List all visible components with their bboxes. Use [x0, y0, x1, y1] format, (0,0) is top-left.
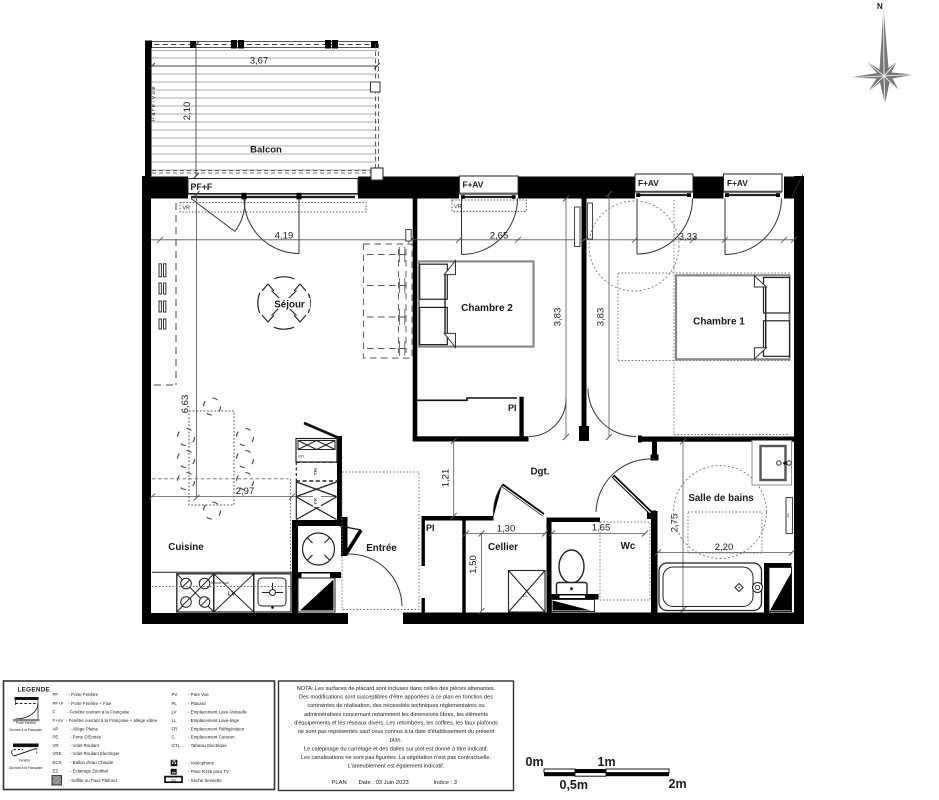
- svg-text:PI: PI: [426, 523, 435, 533]
- svg-text:PV: PV: [172, 692, 178, 697]
- svg-text:- Emplacement Lave-Vaisselle: - Emplacement Lave-Vaisselle: [188, 710, 248, 715]
- svg-text:contraintes de réalisation, de: contraintes de réalisation, des nécessit…: [307, 703, 484, 709]
- svg-text:1,50: 1,50: [468, 555, 479, 574]
- svg-text:1,30: 1,30: [497, 523, 516, 534]
- svg-text:AP: AP: [53, 726, 59, 731]
- svg-text:1,65: 1,65: [592, 523, 611, 534]
- svg-text:F+AV: F+AV: [53, 718, 64, 723]
- svg-text:2,20: 2,20: [715, 542, 734, 553]
- svg-text:- Emplacement Lave-linge: - Emplacement Lave-linge: [188, 718, 240, 723]
- svg-text:LEGENDE: LEGENDE: [18, 687, 51, 694]
- svg-text:- Placard: - Placard: [188, 701, 206, 706]
- svg-text:Meuble haut: Meuble haut: [211, 581, 229, 585]
- svg-text:LL: LL: [523, 593, 528, 598]
- svg-text:FR: FR: [172, 726, 178, 731]
- svg-text:N: N: [877, 2, 883, 11]
- svg-text:Chambre 1: Chambre 1: [693, 317, 745, 328]
- svg-text:Salle de bains: Salle de bains: [688, 493, 754, 504]
- svg-text:- Volet Roulant Electrique: - Volet Roulant Electrique: [70, 751, 120, 756]
- svg-text:- Fenêtre ouvrant à la França: - Fenêtre ouvrant à la Française + allèg…: [66, 718, 158, 723]
- svg-text:1,21: 1,21: [440, 469, 451, 488]
- svg-text:0m: 0m: [526, 755, 544, 769]
- svg-text:Chambre 2: Chambre 2: [461, 303, 513, 314]
- svg-text:TRI: TRI: [313, 468, 318, 475]
- svg-text:Ouvrant à la Française: Ouvrant à la Française: [9, 728, 43, 732]
- svg-text:- Fenêtre ouvrant à la França: - Fenêtre ouvrant à la Française: [67, 710, 130, 715]
- svg-text:- Emplacement Cuisson: - Emplacement Cuisson: [188, 734, 235, 739]
- svg-text:3,83: 3,83: [553, 308, 564, 327]
- svg-text:- Allège Pleine: - Allège Pleine: [70, 726, 99, 731]
- svg-text:F: F: [53, 710, 56, 715]
- svg-text:2,10: 2,10: [182, 102, 193, 121]
- svg-text:Wc: Wc: [621, 541, 636, 552]
- svg-text:1m: 1m: [598, 755, 616, 769]
- svg-text:Balcon: Balcon: [250, 145, 282, 156]
- svg-text:- Porte Fenêtre: - Porte Fenêtre: [69, 692, 99, 697]
- svg-text:F+AV: F+AV: [638, 178, 659, 188]
- svg-text:FR: FR: [313, 497, 318, 504]
- svg-text:SS: SS: [786, 513, 790, 517]
- svg-text:2,97: 2,97: [236, 486, 255, 497]
- svg-text:ne sont pas représentés sauf c: ne sont pas représentés sauf ceux connus…: [298, 729, 495, 735]
- svg-text:0,5m: 0,5m: [560, 778, 589, 792]
- svg-text:LV: LV: [228, 591, 236, 598]
- svg-text:PF: PF: [53, 692, 59, 697]
- svg-text:PI: PI: [508, 403, 517, 413]
- svg-text:PF+F: PF+F: [53, 701, 64, 706]
- svg-text:Fenêtre: Fenêtre: [19, 759, 31, 763]
- svg-text:VR: VR: [53, 743, 59, 748]
- svg-text:Des modifications sont suscept: Des modifications sont susceptibles d'êt…: [299, 695, 493, 701]
- svg-text:administratives concernant not: administratives concernant notamment les…: [304, 712, 488, 718]
- svg-text:- Porte D'Entrée: - Porte D'Entrée: [70, 734, 102, 739]
- svg-text:2,65: 2,65: [490, 230, 509, 241]
- svg-text:PLAN: PLAN: [332, 780, 347, 786]
- svg-text:- Soffite ou Faux Plafond: - Soffite ou Faux Plafond: [69, 778, 118, 783]
- svg-text:- Porte Fenêtre + Fixe: - Porte Fenêtre + Fixe: [69, 701, 112, 706]
- svg-text:Dgt.: Dgt.: [530, 467, 549, 478]
- svg-text:Entrée: Entrée: [366, 543, 397, 554]
- svg-text:Date : 03 Juin 2023: Date : 03 Juin 2023: [359, 780, 409, 786]
- svg-text:LL: LL: [172, 718, 177, 723]
- svg-text:Séjour: Séjour: [274, 300, 305, 311]
- svg-text:3,33: 3,33: [679, 231, 698, 242]
- svg-text:- Tableau Electrique: - Tableau Electrique: [188, 743, 227, 748]
- svg-text:6,63: 6,63: [180, 395, 191, 414]
- svg-text:GTL: GTL: [298, 455, 305, 459]
- svg-text:Indice : 3: Indice : 3: [434, 780, 458, 786]
- svg-text:Le calepinage du carrelage et: Le calepinage du carrelage et des dalles…: [304, 746, 489, 752]
- svg-text:- Eclairage Zénithal: - Eclairage Zénithal: [70, 769, 108, 774]
- svg-text:VRE: VRE: [53, 751, 62, 756]
- svg-text:VR: VR: [454, 204, 462, 210]
- svg-text:SS: SS: [171, 778, 176, 782]
- svg-text:F+AV: F+AV: [463, 180, 484, 190]
- svg-text:4,19: 4,19: [275, 230, 294, 241]
- svg-text:F+AV: F+AV: [727, 178, 748, 188]
- svg-text:EZ: EZ: [53, 769, 59, 774]
- svg-text:GTL: GTL: [172, 743, 181, 748]
- svg-text:C: C: [172, 734, 175, 739]
- svg-text:Les canalisations ne sont pas: Les canalisations ne sont pas figurées. …: [301, 755, 492, 761]
- svg-text:Cuisine: Cuisine: [168, 542, 204, 553]
- svg-text:Ouvrant à la Française: Ouvrant à la Française: [9, 766, 43, 770]
- svg-text:plan.: plan.: [390, 738, 403, 744]
- svg-text:L'ameublement est également in: L'ameublement est également indicatif.: [348, 764, 445, 770]
- svg-text:- Prise RJ45 pour TV: - Prise RJ45 pour TV: [188, 769, 229, 774]
- svg-text:PL: PL: [172, 701, 178, 706]
- svg-text:d'équipements et les réseaux d: d'équipements et les réseaux divers. Les…: [294, 720, 498, 726]
- svg-text:ECS: ECS: [53, 760, 62, 765]
- svg-text:3,83: 3,83: [596, 308, 607, 327]
- svg-text:PE: PE: [53, 734, 59, 739]
- svg-text:3,67: 3,67: [250, 56, 269, 67]
- svg-text:- Vidéophone: - Vidéophone: [188, 761, 215, 766]
- svg-text:- Ballon d'eau Chaude: - Ballon d'eau Chaude: [70, 760, 114, 765]
- svg-text:- Pare Vue: - Pare Vue: [188, 692, 209, 697]
- svg-text:Pare-vue: Pare-vue: [151, 85, 157, 121]
- svg-text:- Emplacement Réfrigérateur: - Emplacement Réfrigérateur: [188, 726, 245, 731]
- svg-text:2m: 2m: [669, 777, 687, 791]
- svg-text:PF+F: PF+F: [191, 182, 213, 192]
- svg-text:- Volet Roulant: - Volet Roulant: [70, 743, 100, 748]
- svg-text:VR: VR: [183, 206, 191, 212]
- svg-text:LV: LV: [172, 710, 177, 715]
- svg-text:NOTA: Les surfaces de placard: NOTA: Les surfaces de placard sont inclu…: [297, 686, 496, 692]
- svg-text:- Sèche Serviette: - Sèche Serviette: [188, 778, 222, 783]
- svg-text:Porte Fenêtre: Porte Fenêtre: [16, 721, 36, 725]
- svg-text:Cellier: Cellier: [488, 542, 518, 553]
